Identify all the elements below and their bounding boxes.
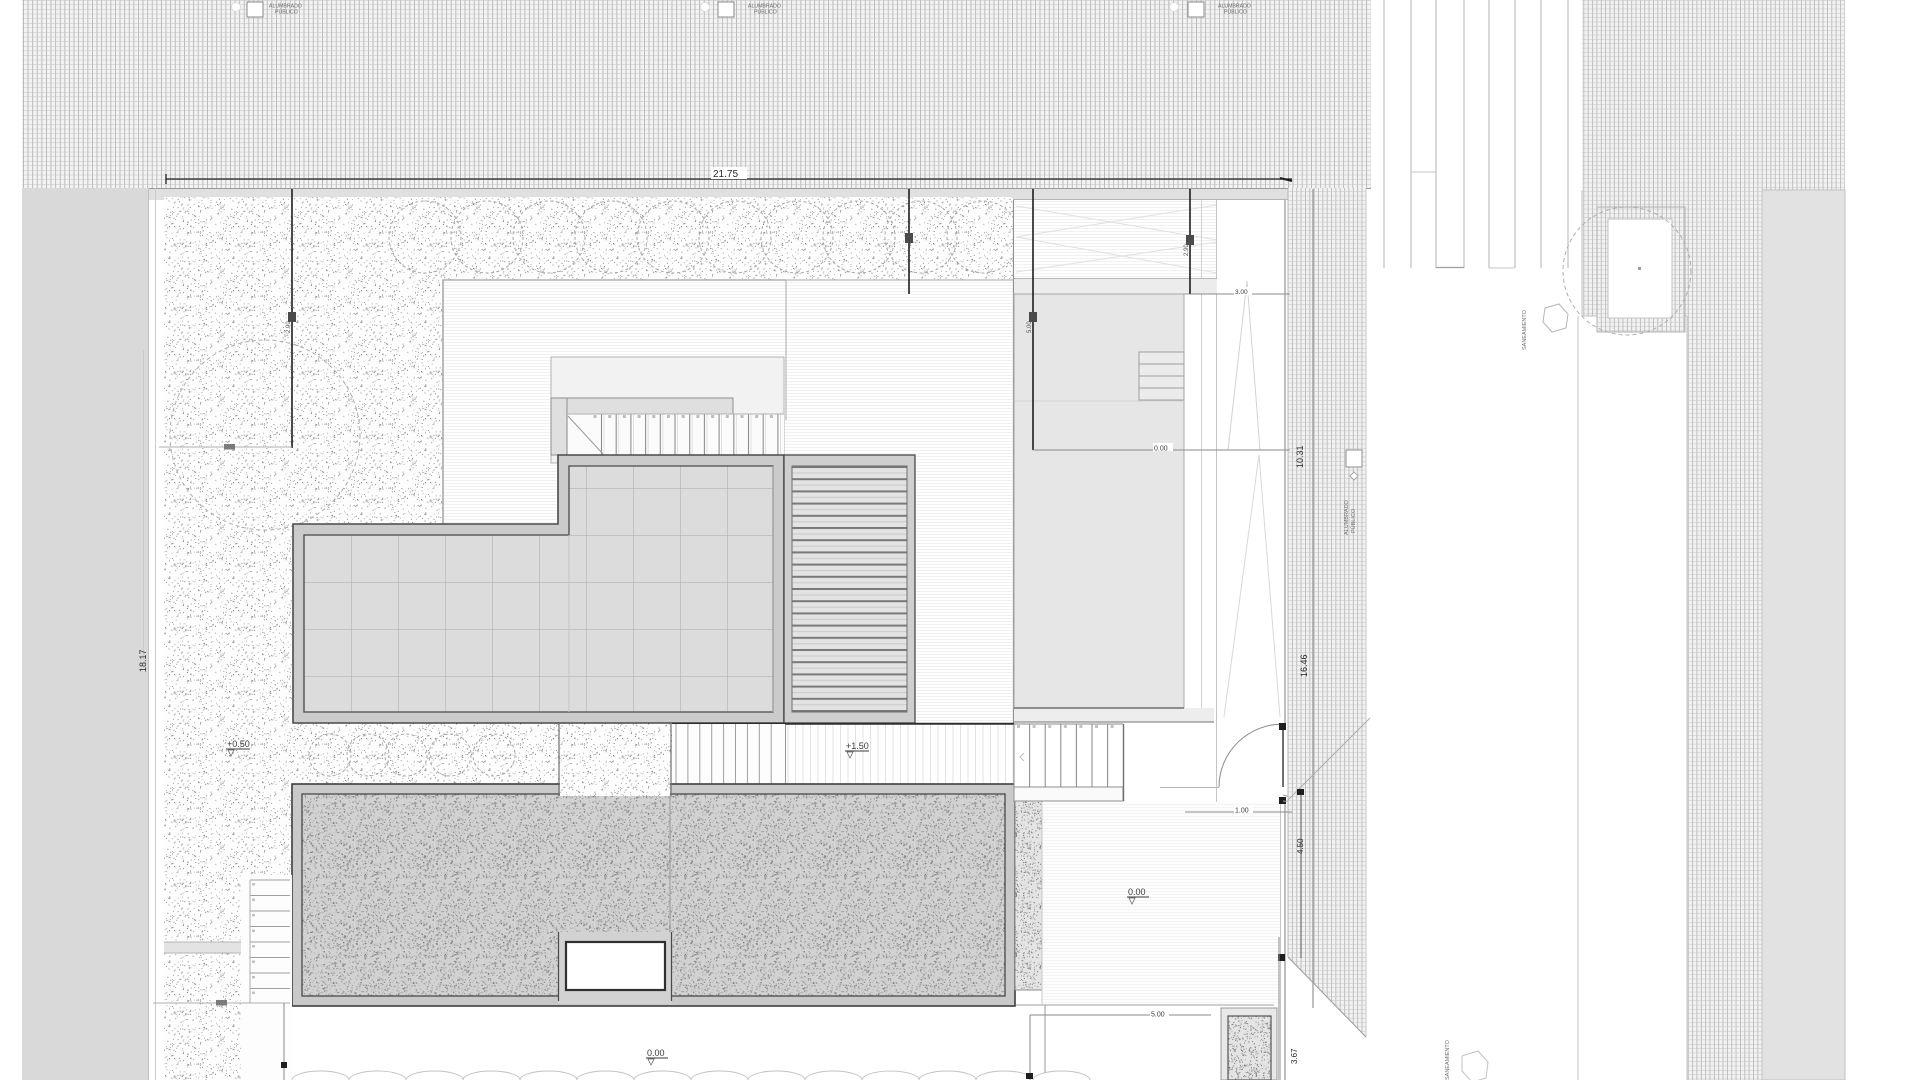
svg-text:3.67: 3.67 bbox=[1290, 1048, 1299, 1064]
svg-text:0.00: 0.00 bbox=[647, 1048, 665, 1058]
svg-text:2.90: 2.90 bbox=[1184, 244, 1190, 256]
svg-text:5.00: 5.00 bbox=[1027, 321, 1033, 333]
svg-text:5.00: 5.00 bbox=[1151, 1012, 1165, 1019]
svg-text:PÚBLICO: PÚBLICO bbox=[275, 9, 298, 16]
svg-text:16.46: 16.46 bbox=[1299, 654, 1309, 677]
svg-text:18.17: 18.17 bbox=[138, 649, 148, 672]
svg-text:+1.50: +1.50 bbox=[846, 741, 869, 751]
svg-text:0.00: 0.00 bbox=[1154, 446, 1168, 453]
svg-text:PÚBLICO: PÚBLICO bbox=[1350, 508, 1357, 533]
svg-text:SANEAMIENTO: SANEAMIENTO bbox=[1522, 309, 1528, 350]
svg-text:10.31: 10.31 bbox=[1295, 445, 1305, 468]
svg-text:ALUMBRADO: ALUMBRADO bbox=[1344, 499, 1350, 535]
svg-text:1.00: 1.00 bbox=[1235, 808, 1249, 815]
svg-text:2.90: 2.90 bbox=[286, 321, 292, 333]
svg-text:PÚBLICO: PÚBLICO bbox=[1224, 9, 1247, 16]
svg-text:4.50: 4.50 bbox=[1296, 838, 1305, 854]
svg-text:3.00: 3.00 bbox=[1235, 289, 1248, 296]
svg-text:+0.50: +0.50 bbox=[227, 739, 250, 749]
svg-text:0.00: 0.00 bbox=[1128, 887, 1146, 897]
svg-text:21.75: 21.75 bbox=[713, 169, 738, 180]
svg-text:SANEAMIENTO: SANEAMIENTO bbox=[1445, 1039, 1451, 1080]
svg-text:PÚBLICO: PÚBLICO bbox=[754, 9, 777, 16]
